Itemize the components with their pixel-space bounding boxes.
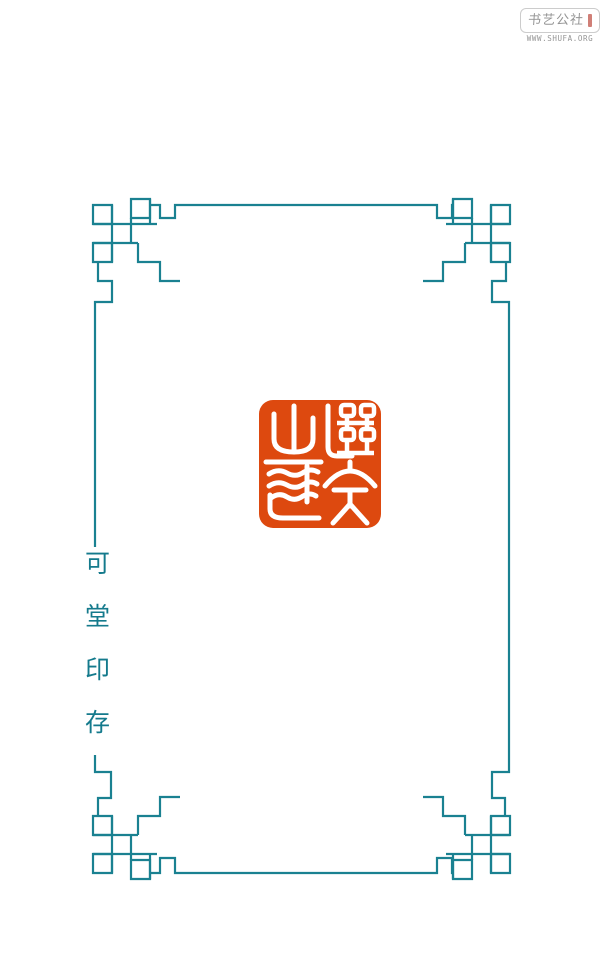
album-title-vertical: 可 堂 印 存 <box>84 551 111 735</box>
fretwork-corner-squares <box>93 199 510 879</box>
seal-impression <box>257 398 383 530</box>
title-char-3: 印 <box>85 657 110 682</box>
fretwork-lines <box>93 199 510 879</box>
title-char-1: 可 <box>85 551 110 576</box>
seal-catalog-page: 书艺公社 WWW.SHUFA.ORG 可 堂 印 存 <box>0 0 605 964</box>
title-char-4: 存 <box>85 710 110 735</box>
title-char-2: 堂 <box>85 604 110 629</box>
